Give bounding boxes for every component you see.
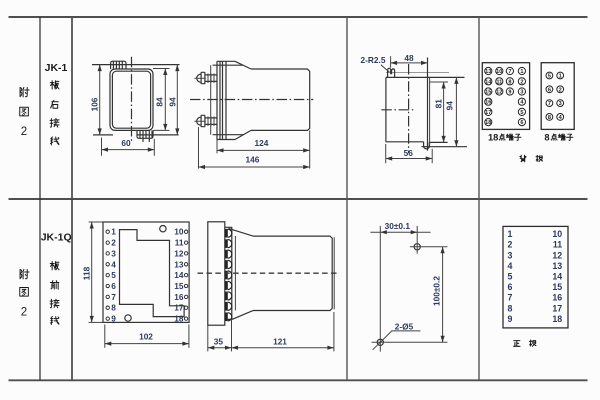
svg-text:1: 1 [508,229,513,239]
svg-text:4: 4 [111,259,116,269]
svg-text:8: 8 [544,132,549,142]
svg-text:16: 16 [174,292,184,302]
svg-text:14: 14 [485,79,492,85]
svg-text:9: 9 [508,90,511,96]
svg-text:8: 8 [548,115,551,121]
svg-text:100±0.2: 100±0.2 [431,276,441,306]
svg-text:12: 12 [552,250,562,260]
svg-text:JK-1: JK-1 [45,62,68,74]
svg-text:3: 3 [508,250,513,260]
svg-text:8: 8 [508,303,513,313]
svg-text:18: 18 [485,120,491,126]
svg-text:94: 94 [445,101,455,111]
svg-text:81: 81 [433,99,443,109]
svg-text:6: 6 [111,281,116,291]
svg-text:1: 1 [111,227,116,237]
svg-text:30±0.1: 30±0.1 [385,221,411,231]
svg-text:2: 2 [21,126,27,138]
svg-text:35: 35 [214,336,224,346]
svg-text:2: 2 [111,238,116,248]
svg-text:118: 118 [82,266,92,280]
svg-text:60: 60 [121,138,131,148]
svg-text:48: 48 [404,53,414,63]
svg-text:11: 11 [496,79,502,85]
svg-text:10: 10 [174,227,184,237]
svg-text:15: 15 [485,90,491,96]
svg-text:3: 3 [520,90,523,96]
svg-text:3: 3 [559,101,562,107]
svg-text:2: 2 [21,307,27,319]
svg-text:2: 2 [559,87,562,93]
svg-text:102: 102 [139,332,153,342]
svg-text:3: 3 [111,248,116,258]
svg-text:17: 17 [552,303,562,313]
svg-text:121: 121 [273,336,287,346]
svg-text:94: 94 [167,97,177,107]
svg-text:6: 6 [520,120,523,126]
svg-text:10: 10 [552,229,562,239]
svg-text:12: 12 [174,248,184,258]
svg-text:18: 18 [488,132,498,142]
svg-text:106: 106 [90,97,100,111]
svg-text:84: 84 [154,97,164,107]
svg-text:12: 12 [496,90,502,96]
svg-text:7: 7 [111,292,116,302]
svg-text:5: 5 [111,270,116,280]
svg-text:9: 9 [111,314,116,324]
svg-text:11: 11 [175,238,184,248]
svg-text:11: 11 [553,240,562,250]
svg-text:16: 16 [485,100,491,106]
svg-text:1: 1 [520,69,523,75]
svg-text:7: 7 [508,69,511,75]
svg-text:5: 5 [520,110,523,116]
svg-text:56: 56 [404,148,414,158]
svg-text:JK-1Q: JK-1Q [41,231,72,243]
svg-text:17: 17 [174,303,184,313]
svg-text:10: 10 [496,69,502,75]
svg-text:124: 124 [254,138,268,148]
svg-text:5: 5 [548,74,551,80]
svg-text:2-R2.5: 2-R2.5 [361,55,386,65]
svg-text:17: 17 [485,110,491,116]
svg-text:16: 16 [552,293,562,303]
svg-text:15: 15 [174,281,184,291]
svg-text:1: 1 [559,74,562,80]
svg-text:13: 13 [174,259,184,269]
svg-text:5: 5 [508,272,513,282]
svg-text:9: 9 [508,314,513,324]
svg-text:14: 14 [552,272,562,282]
svg-text:7: 7 [508,293,513,303]
svg-text:18: 18 [174,314,184,324]
svg-text:2-Ø5: 2-Ø5 [395,322,414,332]
svg-text:2: 2 [508,240,513,250]
svg-text:15: 15 [552,282,562,292]
svg-text:8: 8 [111,303,116,313]
svg-text:7: 7 [548,101,551,107]
svg-text:6: 6 [508,282,513,292]
svg-text:13: 13 [552,261,562,271]
svg-text:4: 4 [508,261,513,271]
svg-text:6: 6 [548,87,551,93]
svg-text:13: 13 [485,69,491,75]
svg-text:146: 146 [245,154,259,164]
svg-text:2: 2 [520,79,523,85]
svg-text:8: 8 [508,79,511,85]
svg-text:14: 14 [174,270,184,280]
svg-text:18: 18 [552,314,562,324]
